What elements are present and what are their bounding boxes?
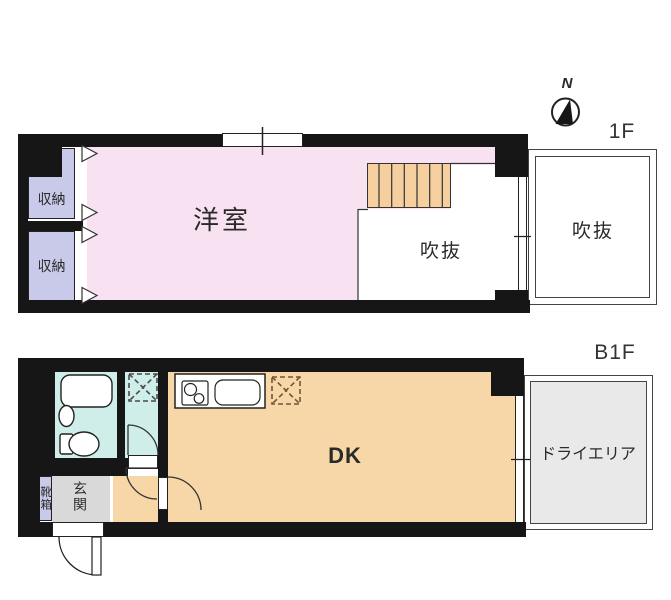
b1-bathroom <box>55 372 117 458</box>
f1-void-window-strip <box>493 177 520 291</box>
f1-void-inner-label: 吹抜 <box>400 241 482 261</box>
compass-north-label: N <box>556 74 578 92</box>
f1-stairs <box>367 163 451 208</box>
f1-void-inner-area-upper <box>451 163 495 209</box>
b1-shoe-box-label: 靴箱 <box>37 481 52 515</box>
f1-western-room-label: 洋室 <box>160 205 284 235</box>
b1-dry-area-label: ドライエリア <box>526 446 650 464</box>
f1-window-right <box>518 177 527 290</box>
b1-dk-label: DK <box>315 444 375 468</box>
entrance-door-leaf <box>92 537 101 575</box>
b1-doorway-dk <box>158 477 168 510</box>
f1-wall-top-right-segment <box>303 134 495 147</box>
f1-wall-block-right-top <box>495 134 528 177</box>
f1-wall-bottom <box>18 300 530 313</box>
b1-wall-left <box>18 358 28 537</box>
b1-wall-bath-bottom-bar <box>28 458 128 476</box>
b1-doorway-entrance <box>52 522 104 537</box>
b1-entrance-step-line <box>110 476 113 522</box>
b1-wall-block-right-top <box>491 358 524 396</box>
f1-floor-label: 1F <box>598 119 646 143</box>
f1-storage-divider-wall <box>28 221 83 231</box>
f1-wall-left <box>18 134 28 313</box>
b1-wall-top <box>18 358 491 372</box>
b1-hallway <box>112 476 158 522</box>
entrance-door <box>59 537 101 575</box>
f1-void-outer-label: 吹抜 <box>533 221 653 241</box>
b1-floor-label: B1F <box>580 340 650 364</box>
f1-window-top <box>222 133 303 147</box>
compass-icon <box>552 99 579 126</box>
b1-washroom <box>125 372 158 458</box>
f1-storage-bottom-label: 収納 <box>28 258 75 273</box>
floorplan-image: 洋室 収納 収納 吹抜 吹抜 1F N DK <box>0 0 671 600</box>
b1-window-right <box>515 396 524 522</box>
f1-wall-block-right-bottom <box>495 290 528 313</box>
f1-storage-top-label: 収納 <box>28 191 75 206</box>
b1-entrance-label: 玄関 <box>71 479 89 515</box>
f1-wall-top-left-segment <box>62 134 222 147</box>
b1-wall-bath-divider <box>117 372 125 458</box>
b1-doorway-washroom <box>128 455 158 469</box>
